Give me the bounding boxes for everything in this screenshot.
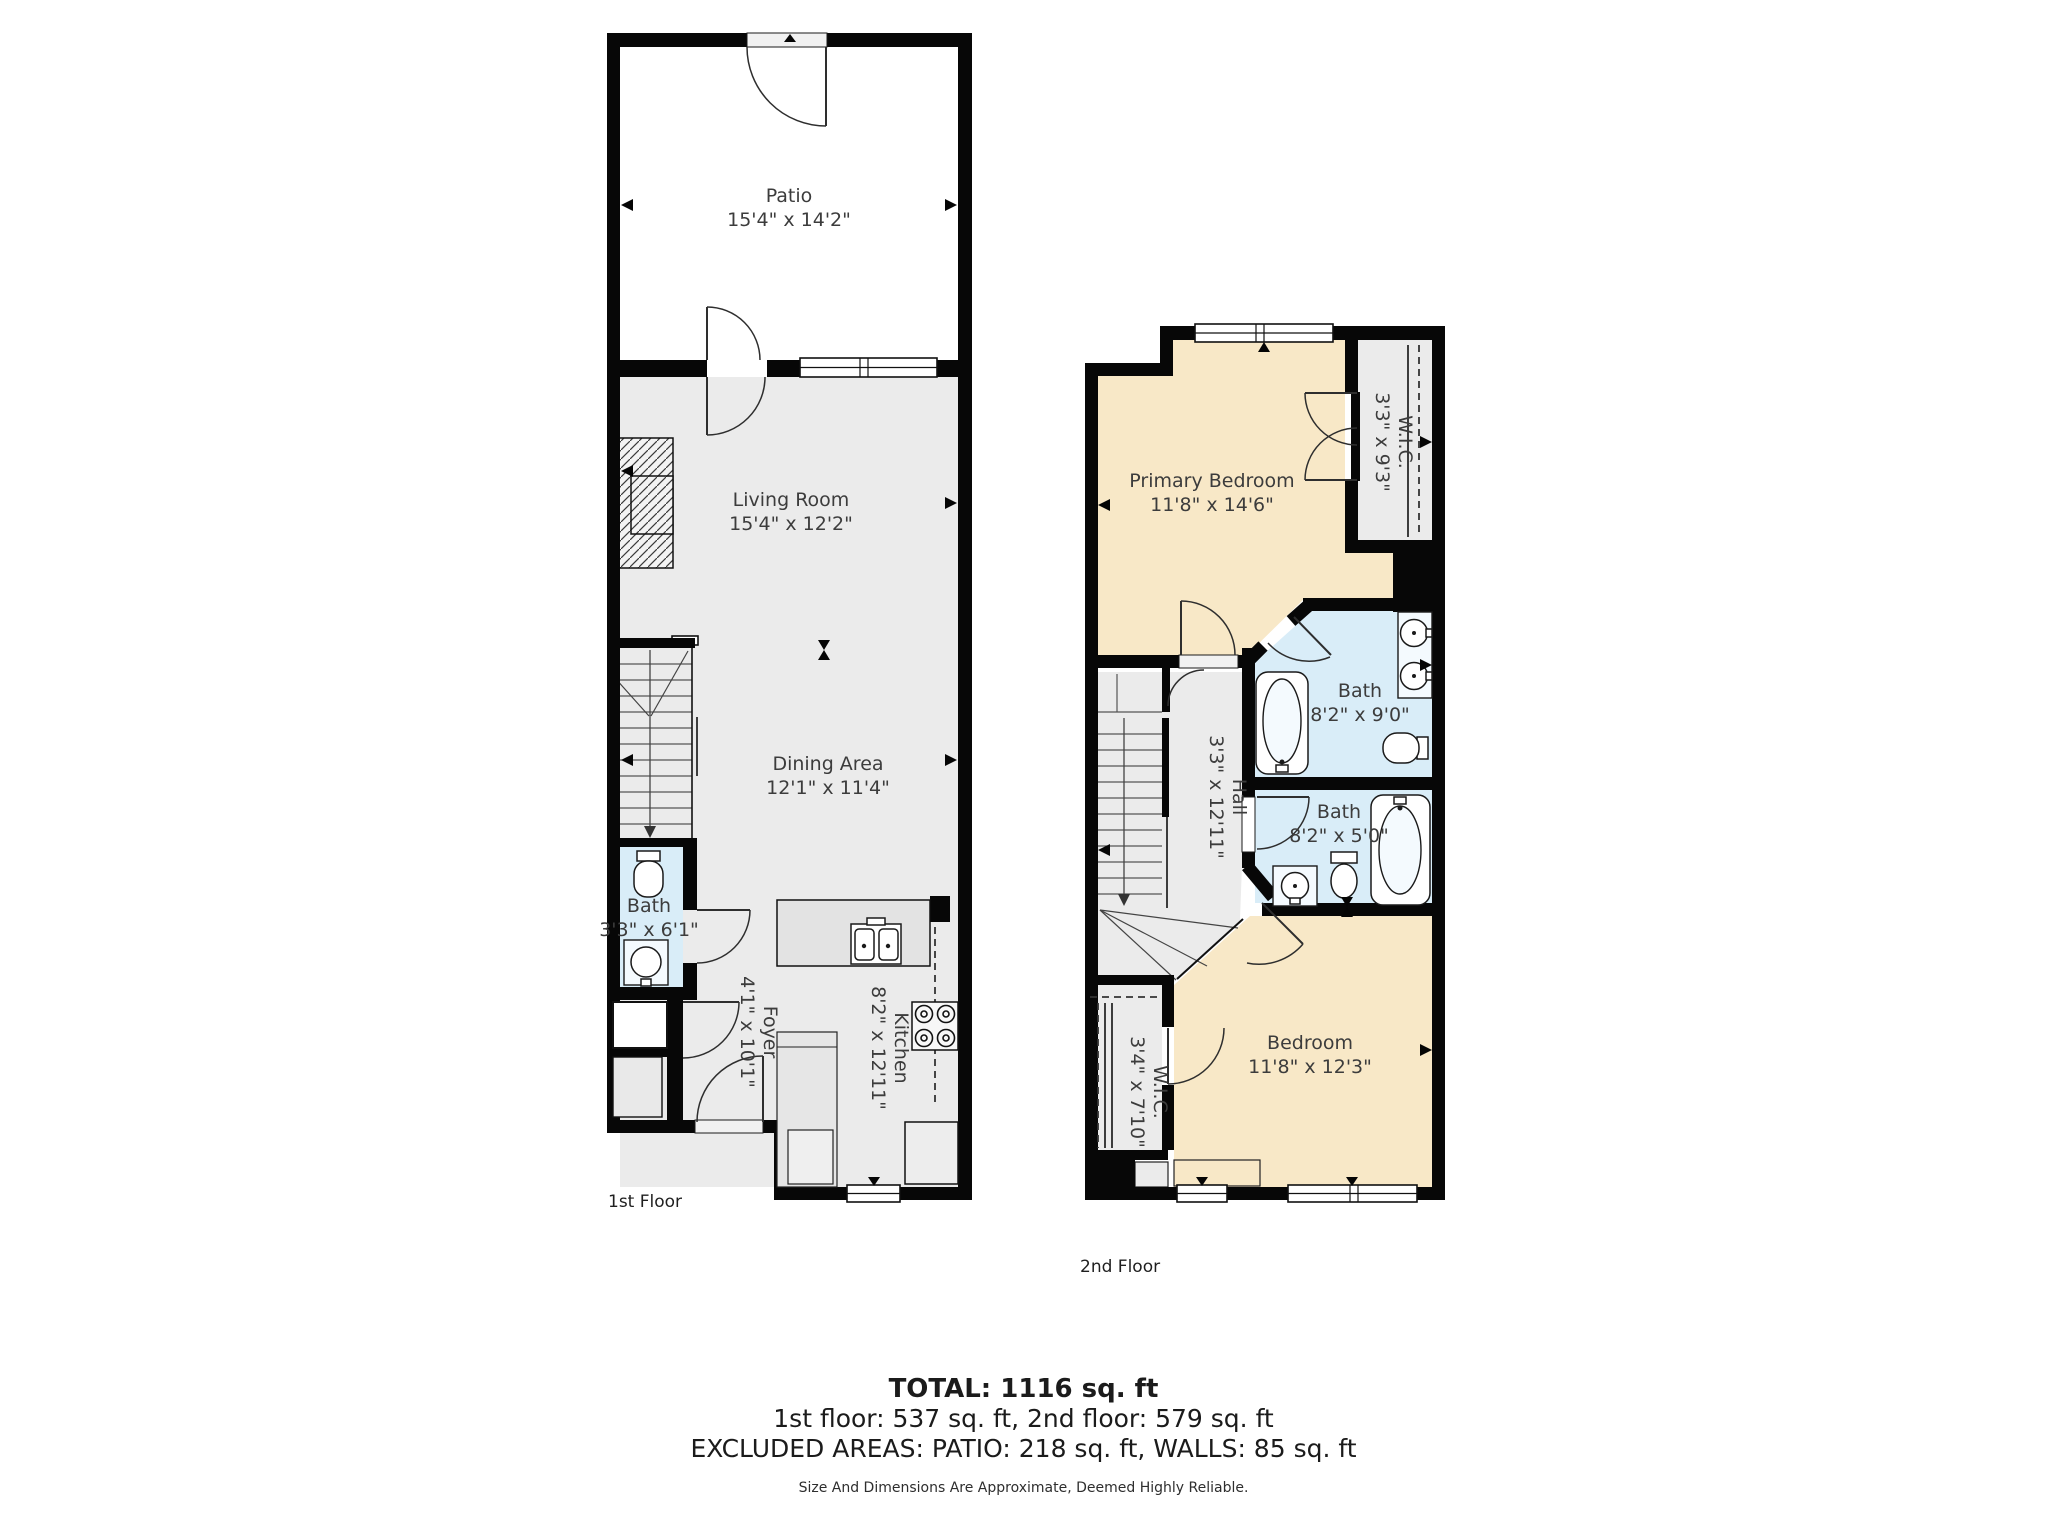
bath1-dims: 3'3" x 6'1" <box>599 919 699 941</box>
hall-dims: 3'3" x 12'11" <box>1205 735 1227 859</box>
foyer-dims: 4'1" x 10'1" <box>736 976 758 1088</box>
entry-door-threshold <box>695 1120 763 1133</box>
bath-top-dims: 8'2" x 9'0" <box>1310 704 1410 726</box>
floor1-plan: Patio 15'4" x 14'2" Living Room 15'4" x … <box>599 33 972 1212</box>
bath-bottom-label: Bath <box>1317 801 1361 823</box>
living-room-dims: 15'4" x 12'2" <box>729 513 853 535</box>
bath-top-label: Bath <box>1338 680 1382 702</box>
dining-area-label: Dining Area <box>772 753 883 775</box>
floorplan-page: Patio 15'4" x 14'2" Living Room 15'4" x … <box>0 0 2047 1535</box>
living-room-label: Living Room <box>733 489 850 511</box>
wic-top-dims: 3'3" x 9'3" <box>1371 392 1393 492</box>
disclaimer: Size And Dimensions Are Approximate, Dee… <box>0 1480 2047 1496</box>
hall-label: Hall <box>1228 779 1250 816</box>
dining-area-dims: 12'1" x 11'4" <box>766 777 890 799</box>
bath1-sink <box>631 947 661 977</box>
kitchen-dims: 8'2" x 12'11" <box>867 986 889 1110</box>
area-summary: TOTAL: 1116 sq. ft 1st floor: 537 sq. ft… <box>0 1374 2047 1496</box>
kitchen-label: Kitchen <box>890 1012 912 1083</box>
wic-top-label: W.I.C. <box>1394 415 1416 469</box>
bath1-label: Bath <box>627 895 671 917</box>
floor2-caption: 2nd Floor <box>1080 1257 1160 1277</box>
patio-dims: 15'4" x 14'2" <box>727 209 851 231</box>
fireplace <box>613 438 673 568</box>
stove <box>912 1002 958 1050</box>
toilet-bottom <box>1331 852 1357 863</box>
floor2-plan: Primary Bedroom 11'8" x 14'6" W.I.C. 3'3… <box>1080 324 1445 1277</box>
floor-areas: 1st floor: 537 sq. ft, 2nd floor: 579 sq… <box>0 1404 2047 1434</box>
bedroom-closet-cell <box>1135 1162 1168 1187</box>
bath-bottom-dims: 8'2" x 5'0" <box>1289 825 1389 847</box>
wic-bottom-dims: 3'4" x 7'10" <box>1126 1036 1148 1148</box>
patio-label: Patio <box>766 185 813 207</box>
total-area: TOTAL: 1116 sq. ft <box>0 1374 2047 1404</box>
primary-bedroom-dims: 11'8" x 14'6" <box>1150 494 1274 516</box>
foyer-label: Foyer <box>759 1006 781 1059</box>
primary-door-threshold <box>1179 655 1238 668</box>
refrigerator <box>905 1122 958 1184</box>
floor1-caption: 1st Floor <box>608 1192 682 1212</box>
floorplan-canvas: Patio 15'4" x 14'2" Living Room 15'4" x … <box>0 0 2047 1535</box>
bedroom-label: Bedroom <box>1267 1032 1353 1054</box>
toilet <box>637 851 660 861</box>
foyer-closets <box>613 1002 667 1117</box>
primary-bedroom-label: Primary Bedroom <box>1129 470 1294 492</box>
excluded-areas: EXCLUDED AREAS: PATIO: 218 sq. ft, WALLS… <box>0 1434 2047 1464</box>
wic-bottom-label: W.I.C. <box>1149 1065 1171 1119</box>
kitchen-island <box>777 1032 837 1187</box>
bedroom-dims: 11'8" x 12'3" <box>1248 1056 1372 1078</box>
